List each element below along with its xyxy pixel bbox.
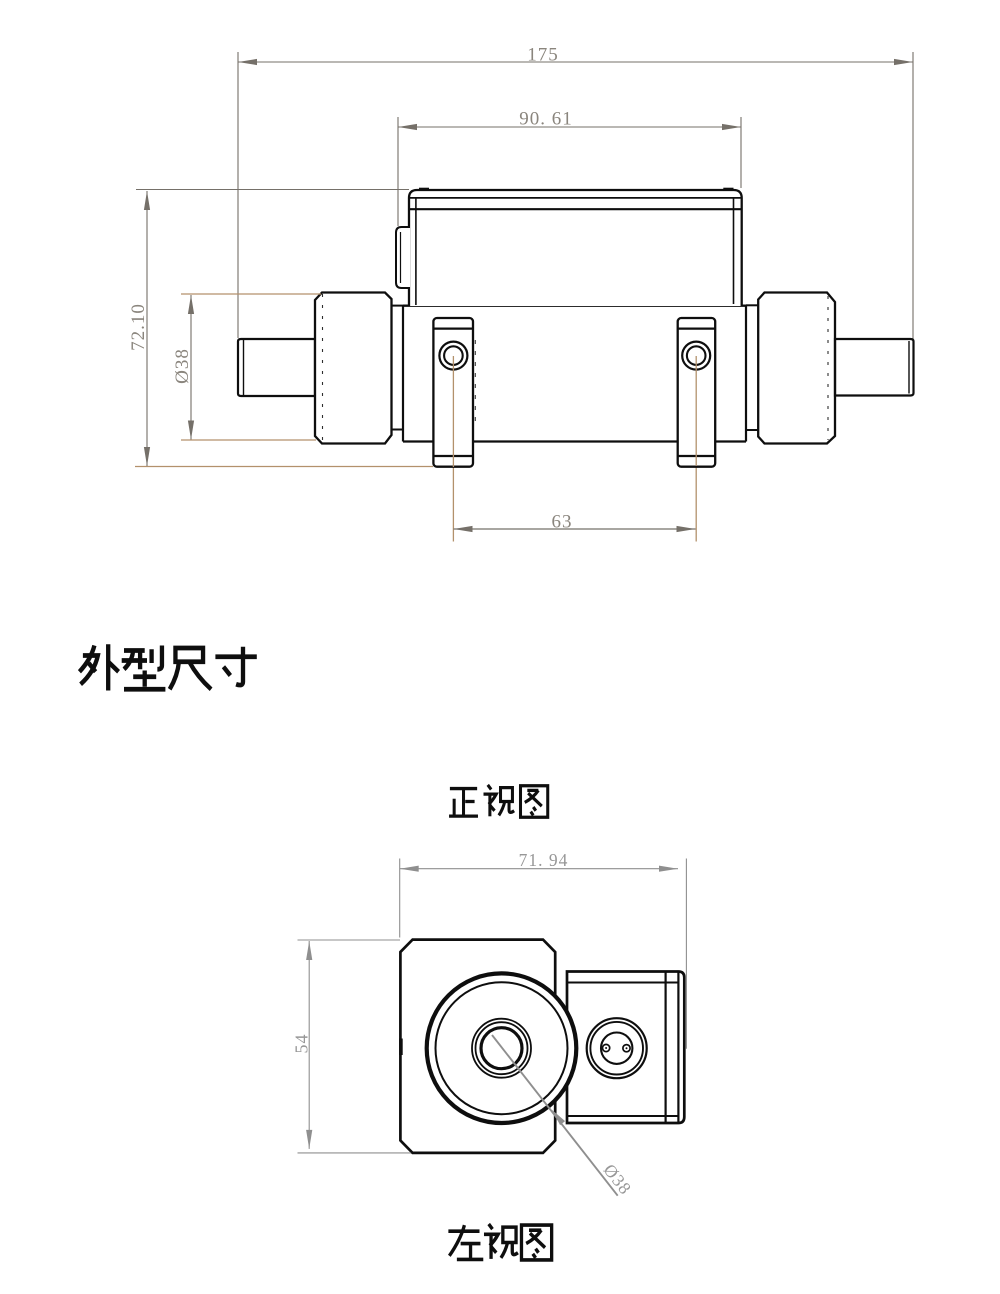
svg-text:71. 94: 71. 94 [519,850,569,870]
svg-text:90. 61: 90. 61 [519,109,573,130]
svg-text:175: 175 [527,45,559,66]
svg-text:72.10: 72.10 [128,303,149,351]
svg-text:54: 54 [292,1034,312,1054]
svg-text:Ø38: Ø38 [172,348,193,384]
svg-text:63: 63 [552,512,573,533]
